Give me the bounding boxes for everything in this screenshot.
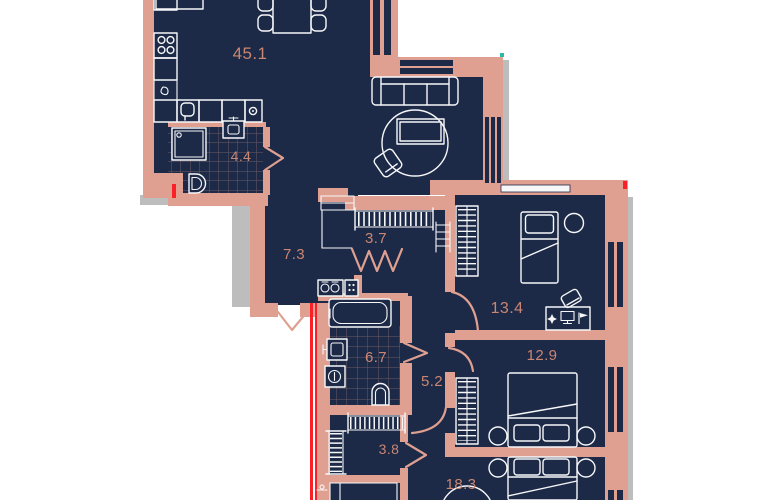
boundary-marker: [315, 303, 317, 500]
entrance-marker: [172, 184, 176, 198]
window-icon: [608, 242, 614, 307]
room-label-bathroom-small: 4.4: [231, 148, 252, 164]
room-label-closet: 3.8: [379, 441, 400, 457]
window-icon: [617, 490, 623, 500]
toilet-icon: [372, 384, 389, 405]
window-icon: [384, 0, 391, 55]
window-icon: [608, 367, 614, 432]
boiler-icon: [325, 366, 345, 387]
window-icon: [497, 117, 501, 183]
window-icon: [617, 242, 623, 307]
room-label-corridor: 5.2: [421, 373, 443, 390]
boundary-marker: [310, 303, 313, 500]
room-label-bathroom-main: 6.7: [365, 349, 387, 366]
room-label-bedroom-1: 13.4: [491, 300, 524, 317]
boundary-marker: [623, 181, 627, 189]
room-label-hallway: 7.3: [283, 246, 305, 263]
floorplan: 45.1 4.4 7.3 3.7 13.4 12.9 6.7 5.2 3.8 1…: [0, 0, 770, 500]
window-icon: [400, 68, 453, 74]
window-icon: [617, 367, 623, 432]
shower-icon: [172, 128, 206, 160]
bathtub-icon: [329, 299, 391, 327]
window-icon: [485, 117, 489, 183]
window-icon: [608, 490, 614, 500]
window-icon: [373, 0, 380, 55]
window-icon: [400, 60, 453, 66]
window-icon: [491, 117, 495, 183]
room-label-wardrobe: 3.7: [365, 230, 387, 247]
washer-dryer-icon: [318, 280, 343, 296]
washbasin-icon: [323, 339, 347, 360]
toilet-icon: [189, 174, 206, 193]
dishwasher-icon: [345, 280, 358, 296]
wall-niche: [501, 185, 570, 192]
marker-dot: [500, 53, 504, 57]
room-label-bedroom-2: 12.9: [527, 347, 558, 364]
room-label-bedroom-master: 18.3: [446, 476, 477, 493]
room-label-kitchen-living: 45.1: [233, 44, 268, 63]
